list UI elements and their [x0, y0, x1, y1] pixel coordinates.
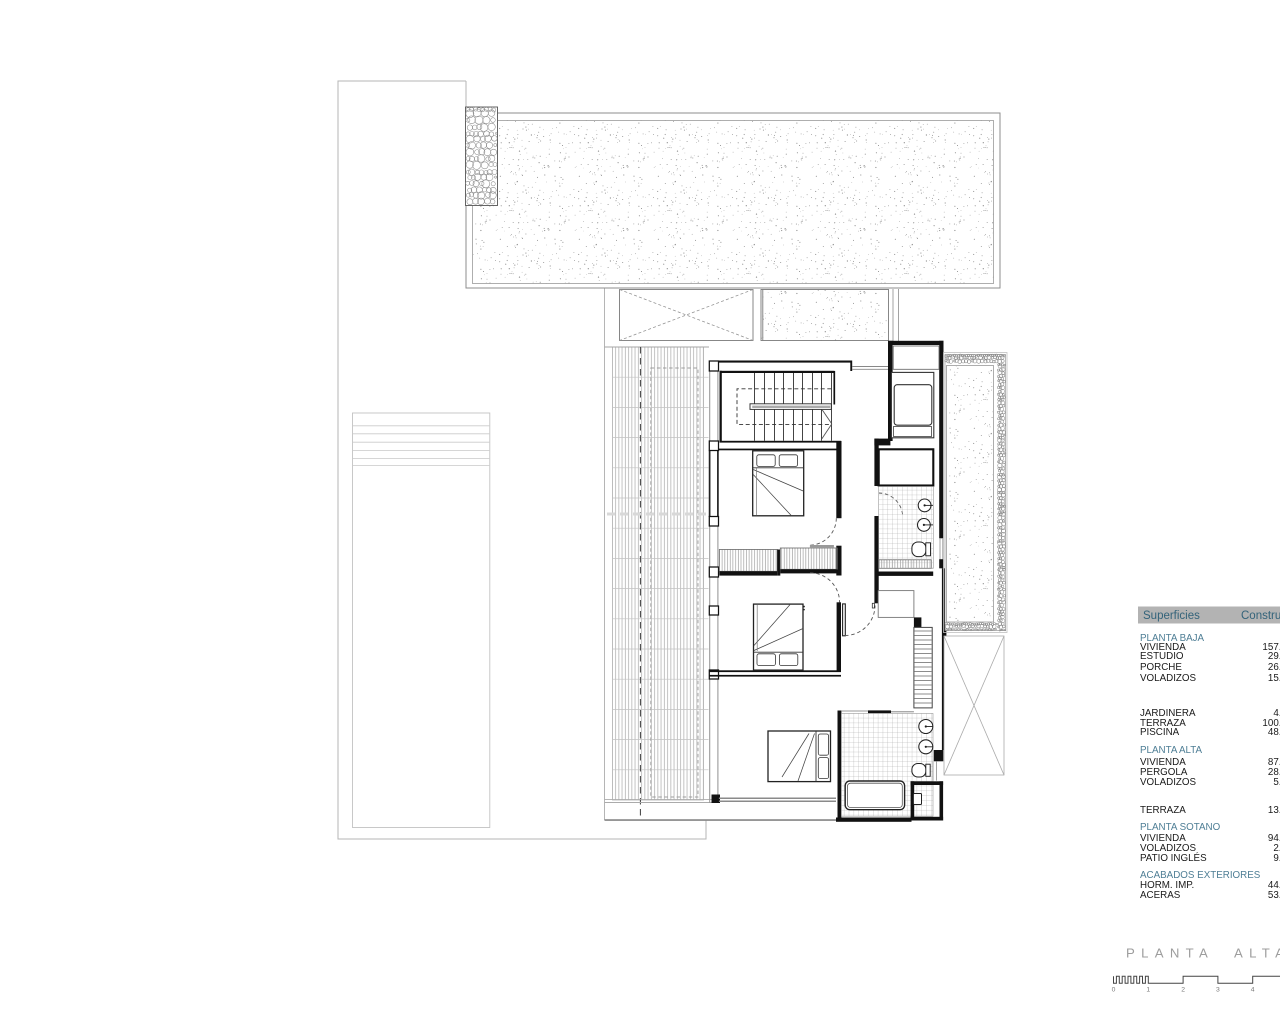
- svg-text:PATIO INGLÉS: PATIO INGLÉS: [1140, 853, 1207, 864]
- svg-text:26.: 26.: [1268, 662, 1280, 673]
- svg-text:15.: 15.: [1268, 673, 1280, 684]
- svg-text:4: 4: [1251, 987, 1255, 994]
- svg-text:Construido: Construido: [1241, 610, 1280, 622]
- svg-text:13.: 13.: [1268, 805, 1280, 816]
- svg-text:29.: 29.: [1268, 651, 1280, 662]
- svg-text:VOLADIZOS: VOLADIZOS: [1140, 777, 1197, 788]
- svg-text:PISCINA: PISCINA: [1140, 727, 1180, 738]
- svg-text:ACERAS: ACERAS: [1140, 890, 1181, 901]
- svg-text:PLANTA SOTANO: PLANTA SOTANO: [1140, 822, 1221, 833]
- svg-text:48.: 48.: [1268, 727, 1280, 738]
- svg-text:Superficies: Superficies: [1143, 610, 1200, 622]
- svg-text:ESTUDIO: ESTUDIO: [1140, 651, 1184, 662]
- svg-text:3: 3: [1216, 987, 1220, 994]
- svg-text:0: 0: [1112, 987, 1116, 994]
- svg-text:VOLADIZOS: VOLADIZOS: [1140, 673, 1197, 684]
- svg-text:1: 1: [1146, 987, 1150, 994]
- svg-text:PLANTA: PLANTA: [1126, 946, 1214, 961]
- svg-text:PLANTA ALTA: PLANTA ALTA: [1140, 745, 1203, 756]
- svg-text:ALTA: ALTA: [1234, 946, 1280, 961]
- svg-text:5.: 5.: [1273, 777, 1280, 788]
- svg-text:PORCHE: PORCHE: [1140, 662, 1182, 673]
- svg-text:9.: 9.: [1273, 853, 1280, 864]
- svg-text:TERRAZA: TERRAZA: [1140, 805, 1186, 816]
- svg-text:53.: 53.: [1268, 890, 1280, 901]
- svg-text:2: 2: [1181, 987, 1185, 994]
